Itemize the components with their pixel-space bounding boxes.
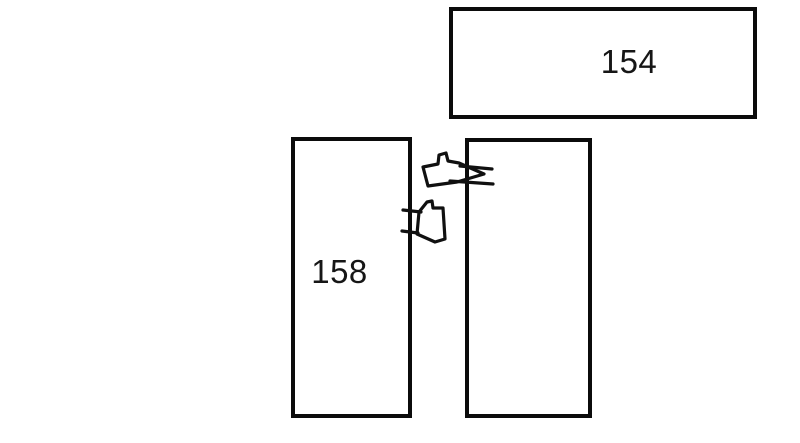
box-158: 158 (291, 137, 412, 418)
box-154: 154 (449, 7, 757, 119)
box-154-label: 154 (601, 45, 658, 78)
box-unlabeled (465, 138, 592, 418)
box-158-label: 158 (311, 255, 368, 288)
diagram-canvas: 154 158 (0, 0, 800, 443)
